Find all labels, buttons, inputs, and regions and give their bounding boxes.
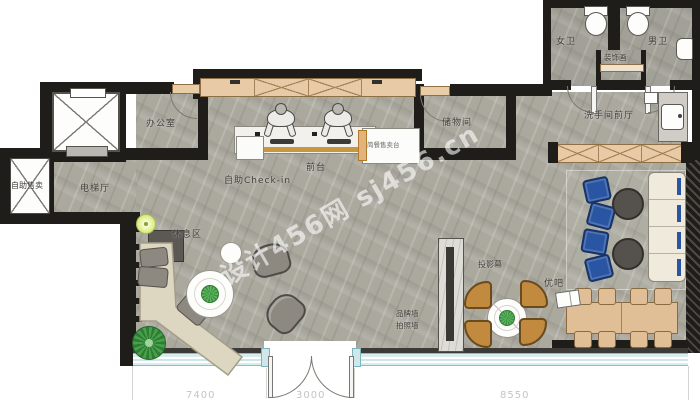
toilet-icon (585, 12, 607, 36)
sofa-cushion-stripe (677, 259, 681, 276)
plant-icon (132, 326, 166, 360)
label-vending: 自助售卖 (11, 180, 43, 191)
dimension-line (266, 368, 267, 398)
plant-icon (201, 285, 219, 303)
wall (118, 148, 208, 160)
floor-plan: 办公室 电梯厅 自助售卖 前台 自助Check-in 简餐售卖台 储物间 女卫 … (0, 0, 700, 400)
lamp-icon (136, 214, 156, 234)
wall (686, 160, 700, 353)
label-reception: 前台 (306, 160, 326, 173)
dimension-right: 8550 (500, 390, 529, 400)
bar-chair (654, 288, 672, 305)
bench-pillow (139, 247, 169, 269)
projection-screen (446, 247, 454, 341)
dimension-left: 7400 (186, 390, 215, 400)
label-rest-area: 休息区 (172, 227, 202, 240)
sink-faucet (678, 114, 682, 118)
cabinet-handle (372, 80, 382, 84)
lounge-round-table (612, 188, 644, 220)
label-mens-wc: 男卫 (648, 34, 668, 47)
sofa-cushion-stripe (677, 232, 681, 249)
staff-figure (321, 102, 353, 138)
label-storage: 储物间 (442, 115, 472, 128)
label-bar: 优吧 (544, 276, 564, 289)
bar-chair (598, 331, 616, 348)
label-brand-wall: 品牌墙 (396, 308, 419, 319)
cabinet-handle (230, 80, 240, 84)
rest-stool (220, 242, 242, 264)
dimension-middle: 3000 (296, 390, 325, 400)
label-office: 办公室 (146, 116, 176, 129)
reception-desk-gold-trim (250, 147, 372, 152)
label-elevator-hall: 电梯厅 (80, 181, 110, 194)
elevator-cab (52, 92, 120, 152)
wall (608, 0, 620, 52)
label-womens-wc: 女卫 (556, 34, 576, 47)
bar-chair (574, 331, 592, 348)
sofa-cushion-stripe (677, 178, 681, 195)
plant-icon (499, 310, 515, 326)
sofa-cushion-stripe (677, 205, 681, 222)
wall (596, 80, 646, 90)
desk-monitor (255, 132, 260, 136)
label-deco-painting: 装饰画 (604, 52, 627, 63)
lounge-sofa (648, 172, 686, 282)
lounge-chair-blue (580, 228, 610, 256)
checkin-kiosk (236, 136, 264, 160)
bar-chair (630, 288, 648, 305)
dimension-line (354, 368, 355, 398)
label-restroom-hall: 洗手间前厅 (584, 108, 634, 121)
desk-equipment (327, 139, 351, 144)
bench-pillow (137, 266, 169, 289)
bar-chair (654, 331, 672, 348)
lounge-cabinet (556, 144, 684, 163)
dimension-line (132, 366, 133, 400)
desk-monitor (312, 132, 317, 136)
dimension-line (688, 366, 689, 400)
coffee-machine (555, 289, 581, 308)
bar-chair (598, 288, 616, 305)
snack-display (358, 130, 367, 161)
elevator-door (66, 146, 108, 157)
staff-figure (264, 102, 296, 138)
label-projection-screen: 投影幕 (478, 259, 502, 270)
label-self-checkin: 自助Check-in (224, 173, 291, 186)
lounge-round-table (612, 238, 644, 270)
wall (543, 0, 700, 8)
urinal-icon (676, 38, 693, 60)
toilet-icon (627, 12, 649, 36)
elevator-sill (70, 88, 106, 98)
label-photo-wall: 拍照墙 (396, 320, 419, 331)
bar-long-table (566, 302, 678, 334)
wall (414, 148, 516, 160)
wall (198, 92, 208, 150)
wall (548, 142, 558, 163)
bar-chair (630, 331, 648, 348)
fixture-box (644, 92, 658, 104)
label-snack-counter: 简餐售卖台 (367, 139, 400, 149)
desk-equipment (270, 139, 294, 144)
wall (681, 142, 695, 163)
deco-painting-bar (600, 64, 644, 72)
